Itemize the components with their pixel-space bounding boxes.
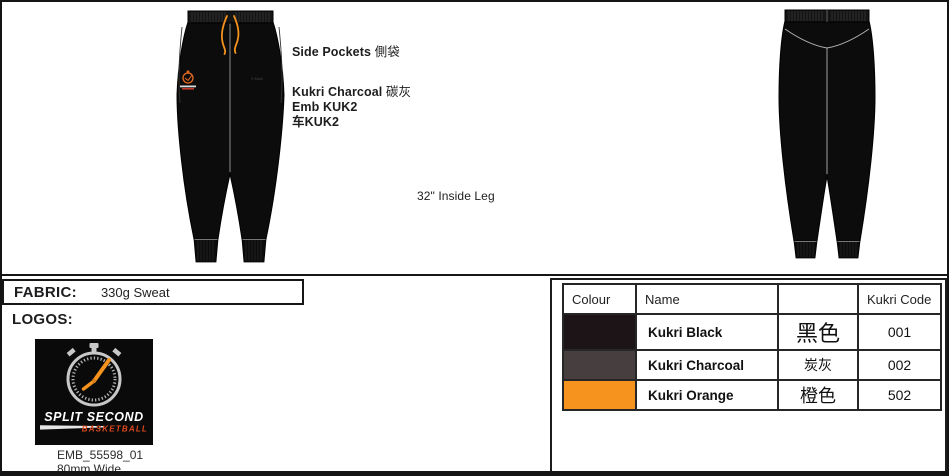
colour-code: 001 <box>858 314 941 350</box>
logo-ref: EMB_55598_01 <box>57 448 143 462</box>
table-row: Kukri Black 黑色 001 <box>563 314 941 350</box>
side-pockets-label-zh: 側袋 <box>375 45 400 59</box>
watermark-text: © Kukri <box>251 77 263 81</box>
logo-subtext: BASKETBALL <box>82 425 148 434</box>
side-pockets-label: Side Pockets <box>292 45 371 59</box>
fabric-value: 330g Sweat <box>101 285 170 300</box>
trim-colour-name: Kukri Charcoal <box>292 85 382 99</box>
header-name: Name <box>636 284 778 314</box>
table-row: Kukri Orange 橙色 502 <box>563 380 941 410</box>
pants-front-view: © Kukri <box>152 7 312 267</box>
stopwatch-icon <box>67 343 122 405</box>
trim-colour-name-zh: 碳灰 <box>386 85 411 99</box>
header-zh <box>778 284 858 314</box>
header-kukri-code: Kukri Code <box>858 284 941 314</box>
team-logo: SPLIT SECOND BASKETBALL <box>35 339 153 445</box>
colour-code: 002 <box>858 350 941 380</box>
cuff-back-right <box>837 241 860 258</box>
spec-sheet-page: © Kukri Side Pockets 側袋 <box>0 0 949 476</box>
logos-label: LOGOS: <box>12 311 73 328</box>
emb-code-line: Emb KUK2 <box>292 100 411 115</box>
waistband <box>188 11 273 23</box>
trim-colour-line: Kukri Charcoal 碳灰 <box>292 85 411 100</box>
trim-colour-note: Kukri Charcoal 碳灰 Emb KUK2 车KUK2 <box>292 85 411 130</box>
colour-name-zh: 炭灰 <box>778 350 858 380</box>
table-row: Kukri Charcoal 炭灰 002 <box>563 350 941 380</box>
cuff-right <box>242 239 266 262</box>
colour-table: Colour Name Kukri Code Kukri Black 黑色 00… <box>562 283 942 411</box>
pants-back-view <box>767 7 887 263</box>
colour-name: Kukri Black <box>636 314 778 350</box>
pants-front-body <box>177 22 284 239</box>
stopwatch-logo-art: SPLIT SECOND BASKETBALL <box>35 339 153 445</box>
fabric-box: FABRIC: 330g Sweat <box>2 279 304 305</box>
header-colour: Colour <box>563 284 636 314</box>
cuff-left <box>194 239 218 262</box>
logo-wordmark: SPLIT SECOND <box>44 410 144 424</box>
fabric-label: FABRIC: <box>14 284 77 301</box>
swatch-kukri-orange <box>563 380 636 410</box>
colour-name-zh: 橙色 <box>778 380 858 410</box>
inside-leg-note: 32" Inside Leg <box>417 189 495 203</box>
colour-name-zh: 黑色 <box>778 314 858 350</box>
colour-name: Kukri Orange <box>636 380 778 410</box>
table-header-row: Colour Name Kukri Code <box>563 284 941 314</box>
side-pockets-note: Side Pockets 側袋 <box>292 41 400 60</box>
cuff-back-left <box>794 241 817 258</box>
colour-code: 502 <box>858 380 941 410</box>
swatch-kukri-black <box>563 314 636 350</box>
waistband-back <box>785 10 869 22</box>
logo-width-note: 80mm Wide <box>57 462 121 476</box>
colour-table-panel: Colour Name Kukri Code Kukri Black 黑色 00… <box>550 278 947 473</box>
swatch-kukri-charcoal <box>563 350 636 380</box>
section-divider <box>2 274 947 276</box>
stitch-code-line: 车KUK2 <box>292 115 411 130</box>
colour-name: Kukri Charcoal <box>636 350 778 380</box>
